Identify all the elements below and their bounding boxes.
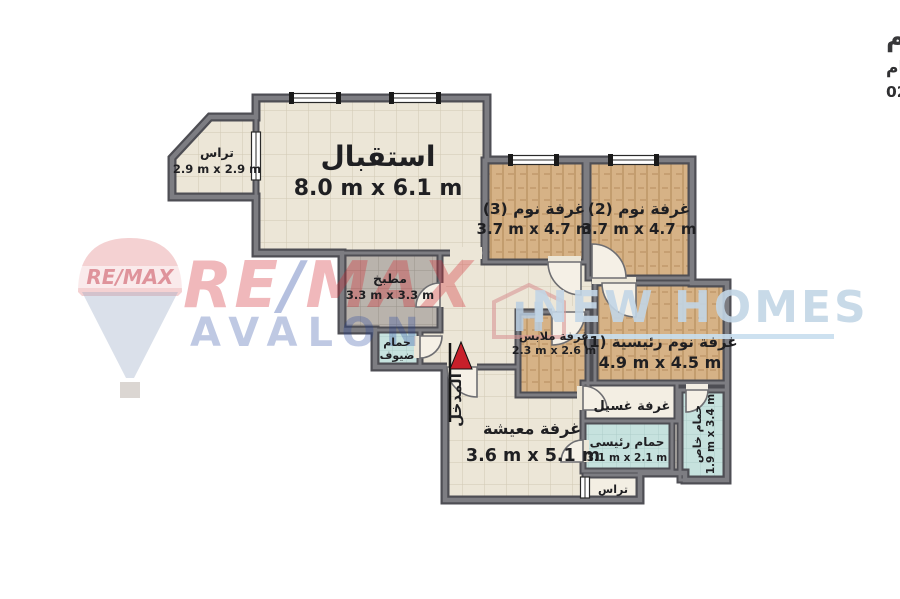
bedroom2-dims: 3.7 m x 4.7 m [582, 220, 697, 238]
guest-bath-label-line2: ضيوف [380, 349, 415, 362]
living-label: غرفة معيشة [483, 419, 581, 438]
dressing-label: غرفة ملابس [519, 329, 589, 343]
listing-code: كود : 020560 [886, 83, 900, 101]
living-dims: 3.6 m x 5.1 m [466, 446, 600, 466]
guest-bath-label-line1: حمام [383, 336, 411, 349]
terrace-top-dims: 2.9 m x 2.9 m [173, 162, 261, 176]
entrance-label: المدخل [447, 373, 465, 427]
bedroom3-dims: 3.7 m x 4.7 m [477, 220, 592, 238]
title-block: شقة للبيع - سموحة - مروج - 230 م 4غرف + … [886, 23, 900, 101]
floor-plan-page: RE/MAX RE/MAX AVALON H NEW HOMES تراس 2.… [0, 0, 900, 599]
reception-label: استقبال [321, 140, 436, 173]
floor-plan-canvas: RE/MAX RE/MAX AVALON H NEW HOMES تراس 2.… [0, 0, 900, 599]
kitchen-label: مطبخ [373, 271, 407, 286]
master-bedroom-label: غرفة نوم رئيسية (1) [582, 333, 737, 351]
new-homes-watermark-text: NEW HOMES [531, 282, 869, 333]
terrace-top-label: تراس [200, 145, 234, 160]
kitchen-dims: 3.3 m x 3.3 m [346, 288, 434, 302]
master-bath-label: حمام رئيسى [590, 435, 665, 450]
page-subtitle: 4غرف + 4 رسيبشن + 3 حمام [886, 58, 900, 78]
page-title: شقة للبيع - سموحة - مروج - 230 م [886, 23, 900, 53]
remax-balloon-logo: RE/MAX [78, 238, 182, 398]
master-bedroom-dims: 4.9 m x 4.5 m [599, 353, 722, 372]
reception-dims: 8.0 m x 6.1 m [294, 176, 463, 201]
bedroom3-label: غرفة نوم (3) [483, 200, 585, 218]
private-bath-label: حمام خاص [691, 405, 704, 463]
balloon-wordmark: RE/MAX [86, 265, 175, 289]
dressing-dims: 2.3 m x 2.6 m [512, 344, 596, 357]
private-bath-dims: 1.9 m x 3.4 m [705, 394, 717, 475]
bedroom2-label: غرفة نوم (2) [588, 200, 690, 218]
terrace-bottom-label: تراس [598, 483, 628, 496]
master-bath-dims: 3.1 m x 2.1 m [587, 452, 668, 464]
laundry-label: غرفة غسيل [594, 399, 671, 414]
